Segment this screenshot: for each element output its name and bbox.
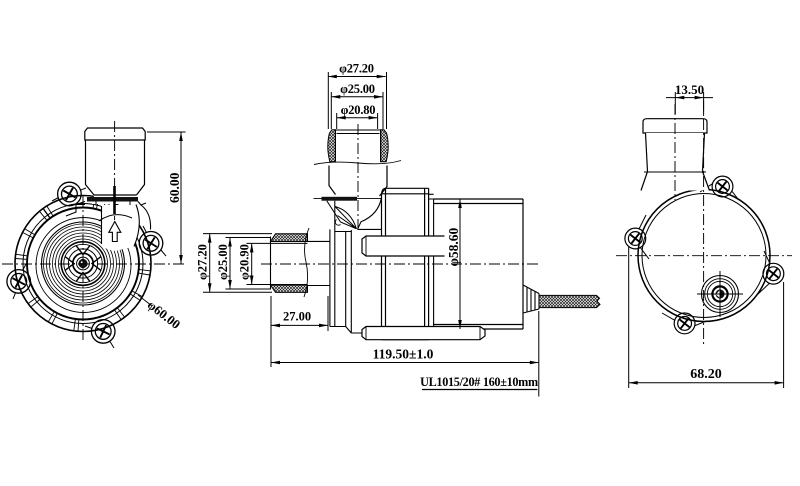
svg-text:φ20.90: φ20.90 — [238, 244, 252, 280]
svg-text:119.50±1.0: 119.50±1.0 — [373, 347, 434, 362]
svg-text:13.50: 13.50 — [675, 82, 704, 97]
svg-text:φ58.60: φ58.60 — [446, 227, 461, 266]
svg-text:φ27.20: φ27.20 — [196, 244, 210, 280]
svg-text:68.20: 68.20 — [690, 367, 722, 382]
svg-text:φ25.00: φ25.00 — [340, 82, 375, 96]
svg-text:φ25.00: φ25.00 — [216, 244, 230, 280]
svg-text:φ20.80: φ20.80 — [341, 103, 376, 117]
svg-text:UL1015/20# 160±10mm: UL1015/20# 160±10mm — [420, 375, 538, 389]
svg-text:27.00: 27.00 — [283, 310, 311, 324]
svg-text:φ27.20: φ27.20 — [339, 62, 374, 76]
svg-text:60.00: 60.00 — [167, 172, 182, 203]
